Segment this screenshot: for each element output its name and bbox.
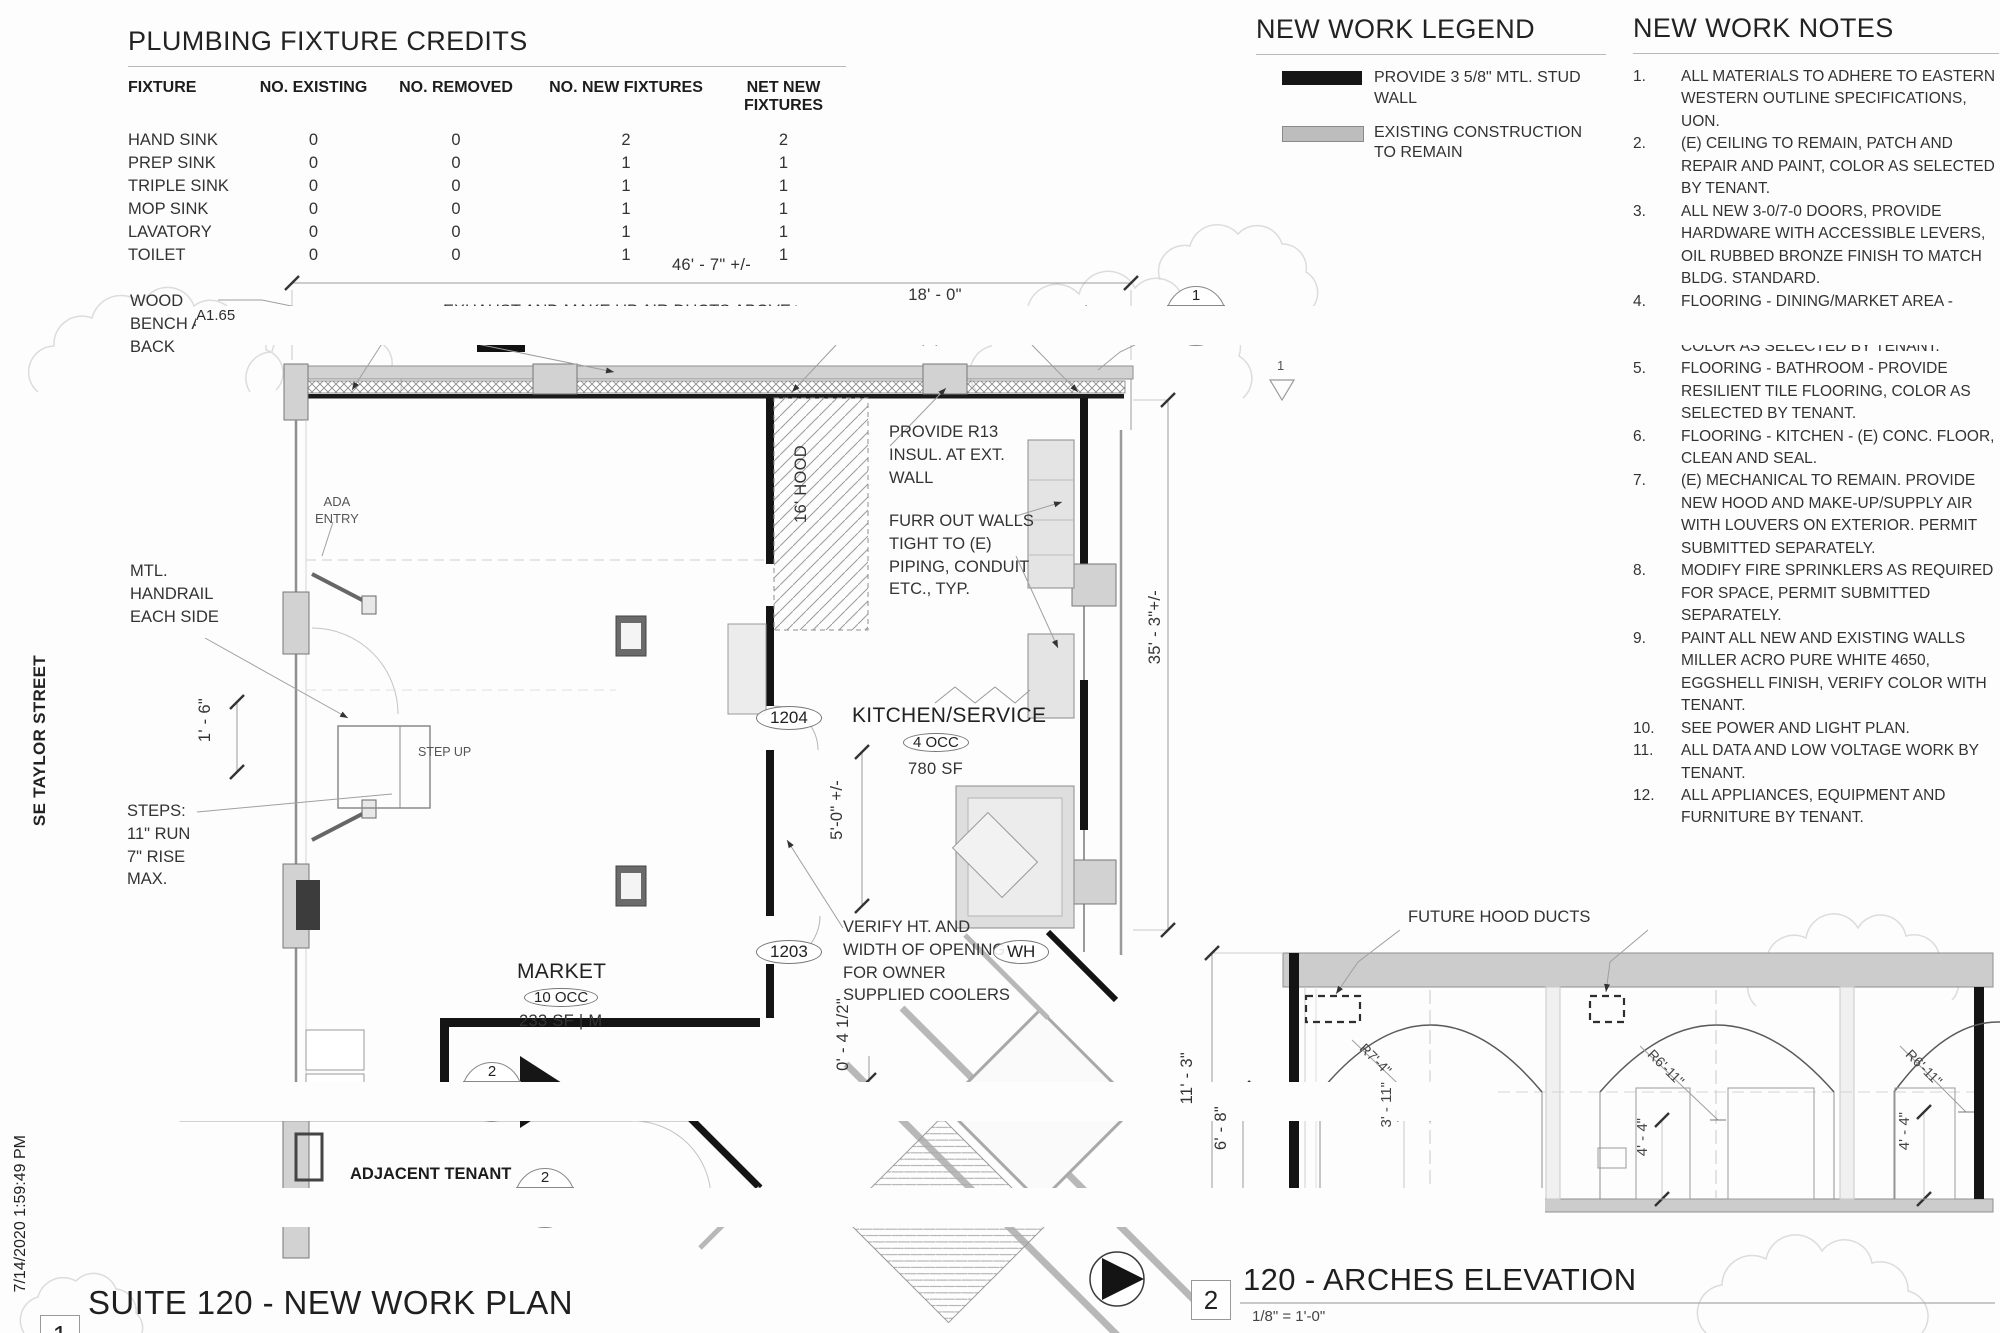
dim-elev-height: 11' - 3" — [1178, 1052, 1197, 1104]
new-work-notes: NEW WORK NOTES 1.ALL MATERIALS TO ADHERE… — [1633, 13, 1999, 830]
table-cell: 0 — [246, 175, 381, 198]
legend-item: PROVIDE 3 5/8" MTL. STUD WALL — [1256, 68, 1606, 110]
table-cell: 1 — [721, 175, 846, 198]
left-exterior-wall — [283, 420, 766, 1258]
ada-entry-label: ADA ENTRY — [315, 494, 359, 528]
table-cell: 2 — [721, 129, 846, 152]
callout-sheet: A1.55 — [0, 1082, 1492, 1121]
area-kitchen: 780 SF — [908, 760, 963, 779]
dim-arch2-center: 4' - 4" — [1634, 1118, 1651, 1156]
legend-item-label: PROVIDE 3 5/8" MTL. STUD WALL — [1374, 68, 1606, 110]
table-cell: 1 — [531, 152, 721, 175]
table-cell: 0 — [381, 198, 531, 221]
note-number: 9. — [1633, 628, 1681, 718]
note-number: 1. — [1633, 66, 1681, 133]
future-hood-duct — [1590, 996, 1624, 1022]
table-cell: 1 — [531, 221, 721, 244]
area-market: 233 SF | M — [519, 1012, 602, 1031]
note-item: 12.ALL APPLIANCES, EQUIPMENT AND FURNITU… — [1633, 785, 1999, 830]
note-number: 8. — [1633, 560, 1681, 627]
dim-arch1-center: 3' - 11" — [1378, 1082, 1395, 1127]
occupancy-tag-market: 10 OCC — [524, 988, 598, 1007]
note-number: 6. — [1633, 426, 1681, 471]
dim-arch3-center: 4' - 4" — [1896, 1112, 1913, 1150]
furr-out-note: FURR OUT WALLS TIGHT TO (E) PIPING, COND… — [889, 510, 1034, 601]
callout-number: 2 — [516, 1169, 574, 1188]
note-text: MODIFY FIRE SPRINKLERS AS REQUIRED FOR S… — [1681, 560, 1999, 627]
door-tag-1204: 1204 — [756, 706, 822, 730]
fixture-table-title: PLUMBING FIXTURE CREDITS — [128, 26, 846, 67]
fixture-table: FIXTURE NO. EXISTING NO. REMOVED NO. NEW… — [128, 79, 846, 267]
note-number: 10. — [1633, 718, 1681, 740]
table-cell: HAND SINK — [128, 129, 246, 152]
street-label: SE TAYLOR STREET — [30, 655, 50, 826]
callout-sheet: A1.65 — [196, 306, 2000, 345]
legend-title: NEW WORK LEGEND — [1256, 14, 1606, 55]
future-hood-ducts-label: FUTURE HOOD DUCTS — [1408, 906, 1590, 929]
water-heater-tag: WH — [993, 940, 1049, 964]
note-number: 5. — [1633, 358, 1681, 425]
notes-title: NEW WORK NOTES — [1633, 13, 1999, 54]
elevation-scale: 1/8" = 1'-0" — [1252, 1308, 1325, 1325]
dim-elev-spring: 6' - 8" — [1212, 1106, 1231, 1150]
keynote-triangle — [1270, 380, 1294, 400]
dim-overall-width: 46' - 7" +/- — [292, 256, 1131, 275]
note-number: 2. — [1633, 133, 1681, 200]
table-cell: 0 — [246, 221, 381, 244]
note-number: 7. — [1633, 470, 1681, 560]
r13-insulation-note: PROVIDE R13 INSUL. AT EXT. WALL — [889, 421, 1005, 489]
table-cell: LAVATORY — [128, 221, 246, 244]
elevation-view-number: 2 — [1191, 1280, 1231, 1320]
legend-item: EXISTING CONSTRUCTION TO REMAIN — [1256, 123, 1606, 165]
table-cell: 1 — [721, 221, 846, 244]
door-tag-1203: 1203 — [756, 940, 822, 964]
table-cell: 1 — [721, 198, 846, 221]
dim-depth: 35' - 3"+/- — [1146, 590, 1165, 664]
note-text: ALL APPLIANCES, EQUIPMENT AND FURNITURE … — [1681, 785, 1999, 830]
table-cell: MOP SINK — [128, 198, 246, 221]
dim-wall-offset: 0' - 4 1/2" — [834, 998, 853, 1071]
note-number: 12. — [1633, 785, 1681, 830]
table-cell: 0 — [246, 152, 381, 175]
col-header: NO. EXISTING — [246, 79, 381, 129]
top-exterior-wall — [284, 339, 1133, 420]
right-exterior-wall — [1072, 379, 1131, 955]
table-cell: 0 — [381, 129, 531, 152]
table-cell: 1 — [531, 198, 721, 221]
note-text: ALL MATERIALS TO ADHERE TO EASTERN WESTE… — [1681, 66, 1999, 133]
table-cell: 0 — [381, 152, 531, 175]
note-item: 3.ALL NEW 3-0/7-0 DOORS, PROVIDE HARDWAR… — [1633, 201, 1999, 291]
note-text: (E) CEILING TO REMAIN, PATCH AND REPAIR … — [1681, 133, 1999, 200]
table-cell: 0 — [381, 175, 531, 198]
occupancy-tag-kitchen: 4 OCC — [903, 733, 969, 752]
table-cell: 1 — [721, 152, 846, 175]
table-cell: 0 — [246, 198, 381, 221]
callout-2-a155: 2 A1.55 — [462, 1062, 522, 1122]
note-item: 2.(E) CEILING TO REMAIN, PATCH AND REPAI… — [1633, 133, 1999, 200]
dim-cooler-opening: 5'-0" +/- — [828, 780, 847, 840]
note-item: 9.PAINT ALL NEW AND EXISTING WALLS MILLE… — [1633, 628, 1999, 718]
note-item: 10.SEE POWER AND LIGHT PLAN. — [1633, 718, 1999, 740]
verify-opening-note: VERIFY HT. AND WIDTH OF OPENING FOR OWNE… — [843, 916, 1010, 1007]
plumbing-fixture-credits: PLUMBING FIXTURE CREDITS FIXTURE NO. EXI… — [128, 26, 846, 267]
col-header: NET NEW FIXTURES — [721, 79, 846, 129]
col-header: NO. NEW FIXTURES — [531, 79, 721, 129]
new-work-legend: NEW WORK LEGEND PROVIDE 3 5/8" MTL. STUD… — [1256, 14, 1606, 164]
col-header: FIXTURE — [128, 79, 246, 129]
drawing-sheet: PLUMBING FIXTURE CREDITS FIXTURE NO. EXI… — [0, 0, 2000, 1333]
callout-sheet: A1.65 — [0, 1188, 1545, 1227]
callout-2-a165: 2 A1.65 — [515, 1168, 575, 1228]
note-number: 3. — [1633, 201, 1681, 291]
note-item: 11.ALL DATA AND LOW VOLTAGE WORK BY TENA… — [1633, 740, 1999, 785]
note-text: ALL DATA AND LOW VOLTAGE WORK BY TENANT. — [1681, 740, 1999, 785]
steps-note: STEPS: 11" RUN 7" RISE MAX. — [127, 800, 190, 891]
callout-number: 2 — [463, 1063, 521, 1082]
elevation-title: 120 - ARCHES ELEVATION — [1243, 1262, 1637, 1298]
existing-construction-swatch — [1282, 126, 1364, 142]
north-arrow-icon — [1090, 1252, 1144, 1306]
elevation-linework — [1205, 930, 2000, 1212]
table-cell: 1 — [531, 175, 721, 198]
col-header: NO. REMOVED — [381, 79, 531, 129]
dim-kitchen-width: 18' - 0" — [790, 286, 1080, 305]
table-cell: 0 — [381, 221, 531, 244]
note-text: PAINT ALL NEW AND EXISTING WALLS MILLER … — [1681, 628, 1999, 718]
hood-hatch — [774, 398, 868, 630]
note-number: 11. — [1633, 740, 1681, 785]
note-text: FLOORING - KITCHEN - (E) CONC. FLOOR, CL… — [1681, 426, 1999, 471]
future-hood-duct — [1306, 996, 1360, 1022]
note-item: 7.(E) MECHANICAL TO REMAIN. PROVIDE NEW … — [1633, 470, 1999, 560]
legend-item-label: EXISTING CONSTRUCTION TO REMAIN — [1374, 123, 1606, 165]
room-name-market: MARKET — [517, 960, 606, 984]
note-item: 5.FLOORING - BATHROOM - PROVIDE RESILIEN… — [1633, 358, 1999, 425]
print-timestamp: 7/14/2020 1:59:49 PM — [12, 1135, 30, 1292]
table-cell: TOILET — [128, 244, 246, 267]
note-item: 6.FLOORING - KITCHEN - (E) CONC. FLOOR, … — [1633, 426, 1999, 471]
hood-label: 16' HOOD — [792, 445, 811, 523]
dim-bench-depth: 1' - 6" — [196, 698, 215, 742]
handrail-note: MTL. HANDRAIL EACH SIDE — [130, 560, 219, 628]
plan-title: SUITE 120 - NEW WORK PLAN — [88, 1284, 573, 1322]
room-name-kitchen: KITCHEN/SERVICE — [852, 704, 1046, 728]
new-stud-wall-swatch — [1282, 71, 1362, 85]
keynote-number: 1 — [1277, 358, 1284, 375]
table-cell: 0 — [246, 129, 381, 152]
plan-view-number: 1 — [40, 1315, 80, 1333]
table-cell: 2 — [531, 129, 721, 152]
callout-1-a165: 1 A1.65 — [1166, 286, 1226, 346]
note-item: 1.ALL MATERIALS TO ADHERE TO EASTERN WES… — [1633, 66, 1999, 133]
note-text: FLOORING - BATHROOM - PROVIDE RESILIENT … — [1681, 358, 1999, 425]
note-text: (E) MECHANICAL TO REMAIN. PROVIDE NEW HO… — [1681, 470, 1999, 560]
note-text: SEE POWER AND LIGHT PLAN. — [1681, 718, 1999, 740]
note-text: ALL NEW 3-0/7-0 DOORS, PROVIDE HARDWARE … — [1681, 201, 1999, 291]
note-item: 8.MODIFY FIRE SPRINKLERS AS REQUIRED FOR… — [1633, 560, 1999, 627]
callout-number: 1 — [1167, 287, 1225, 306]
table-cell: TRIPLE SINK — [128, 175, 246, 198]
table-cell: PREP SINK — [128, 152, 246, 175]
step-up-label: STEP UP — [418, 744, 471, 761]
